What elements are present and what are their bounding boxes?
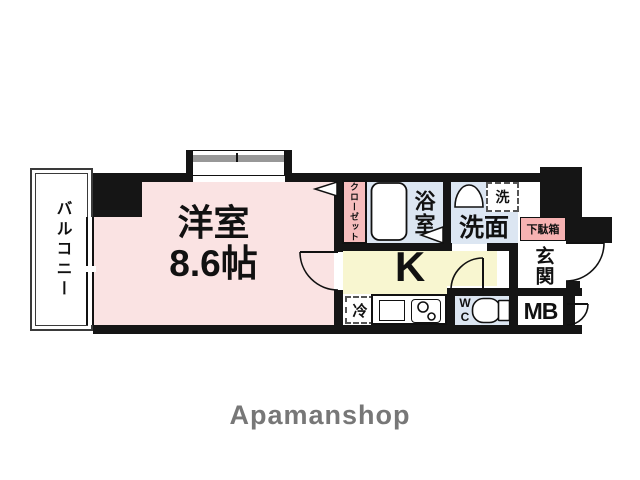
meter-box-label: MB [518,296,563,326]
entrance-label-box: 玄関 [520,243,566,288]
bathroom-label-box: 浴室 [408,184,438,242]
shoe-box: 下駄箱 [520,217,566,241]
wall-segment [566,217,612,243]
wall-segment [290,173,540,182]
apamanshop-logo: Apamanshop [0,400,640,431]
entrance-label: 玄関 [530,246,557,286]
washroom-label: 洗面 [451,209,517,242]
wall-segment [443,173,451,244]
wc-label: W C [457,297,473,325]
main-room-size: 8.6帖 [93,243,334,284]
main-room-name: 洋室 [93,203,334,243]
entrance-door-arc [566,243,604,281]
window-tick [236,153,238,162]
wall-segment [509,243,518,334]
shoe-box-label: 下駄箱 [527,221,560,237]
bathroom-label: 浴室 [408,190,438,236]
refrigerator-label: 冷 [352,300,367,321]
balcony-label: バルコニー [50,200,74,300]
closet: クローゼット [342,180,367,244]
wc-label-line1: W [457,297,473,311]
wall-segment [447,288,455,334]
floorplan-canvas: バルコニー クローゼット 洋室 8.6帖 浴室 洗面 洗 K 冷 W C 下駄箱… [0,0,640,480]
wall-segment [540,167,582,217]
washing-machine-box: 洗 [486,182,519,212]
wall-segment [334,290,343,334]
washing-machine-label: 洗 [496,187,510,207]
entrance-doorway-strip [497,251,509,286]
kitchen-label: K [386,244,434,290]
counter-stove [411,299,441,323]
balcony: バルコニー [30,168,93,331]
window [192,150,285,176]
wall-segment [563,296,575,326]
closet-label: クローゼット [348,182,361,242]
main-room-label: 洋室 8.6帖 [93,203,334,285]
counter-sink [379,300,405,321]
wall-segment [140,173,187,182]
balcony-inner: バルコニー [35,173,88,326]
wc-label-line2: C [457,311,473,325]
